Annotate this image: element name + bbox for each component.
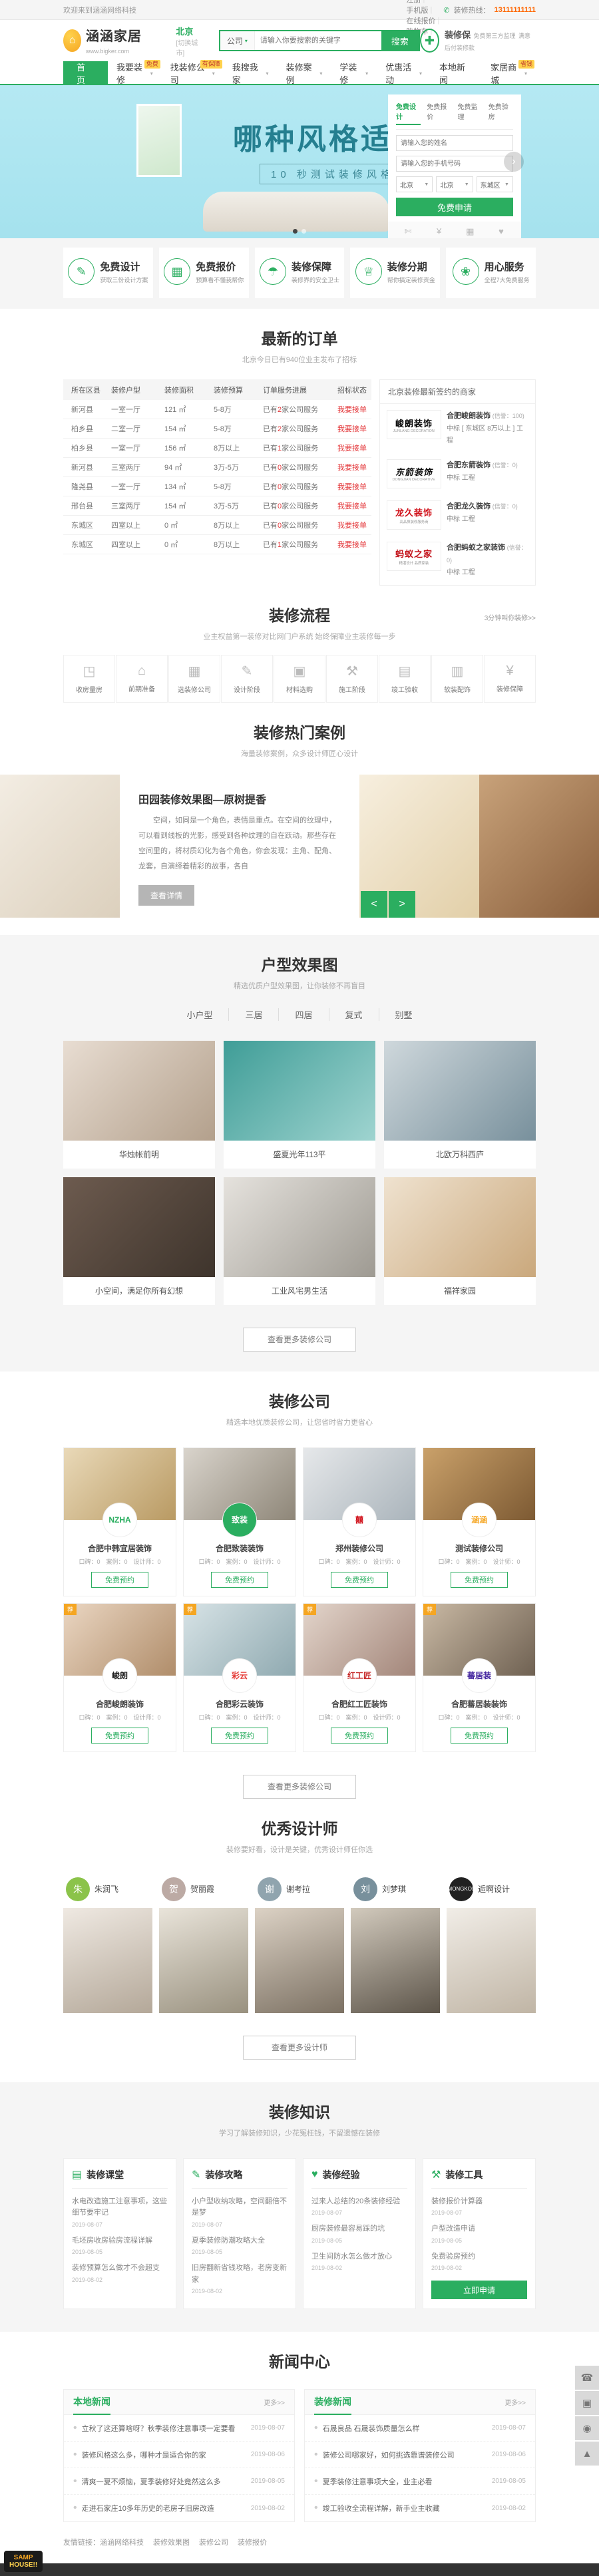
take-order-link[interactable]: 我要接单 — [337, 481, 371, 492]
phone-icon: ✆ — [443, 6, 449, 15]
company-logo: 致装 — [222, 1503, 257, 1537]
order-row: 柏乡县 一室一厅 156 ㎡ 8万以上 已有1家公司服务 我要接单 — [63, 439, 371, 458]
order-row: 新河县 三室两厅 94 ㎡ 3万-5万 已有0家公司服务 我要接单 — [63, 458, 371, 477]
apply-now-button[interactable]: 立即申请 — [431, 2281, 527, 2299]
region-select[interactable]: 东城区▼ — [477, 176, 513, 192]
service-card[interactable]: ☂ 装修保障装修界的安全卫士 — [255, 248, 345, 298]
chevron-down-icon: ▾ — [365, 71, 368, 77]
section-title: 最新的订单 — [0, 309, 599, 349]
quick-service-item[interactable]: ¥免费报价 — [427, 226, 451, 238]
form-tab[interactable]: 免费监理 — [458, 101, 483, 125]
news-more-link[interactable]: 更多>> — [504, 2397, 526, 2407]
layout-filter-tab[interactable]: 小户型 — [170, 1008, 229, 1021]
search-input[interactable] — [255, 31, 381, 50]
layout-image — [224, 1041, 375, 1141]
company-logo: 囍 — [342, 1503, 377, 1537]
company-logo: 蕃居装 — [462, 1658, 497, 1693]
bullet-icon: • — [73, 2476, 77, 2487]
designers-section: 优秀设计师 装修要好看，设计是关键，优秀设计师任你选 朱 朱润飞 贺 贺丽霞 — [0, 1799, 599, 2060]
chevron-down-icon: ▾ — [524, 71, 527, 77]
merchant-item[interactable]: 东箭装饰DONGJIAN DECORATIVE 合肥东箭装饰 (信誉：0) 中标… — [380, 453, 535, 494]
friend-link[interactable]: 装修效果图 — [153, 2539, 190, 2547]
home-icon: ⌂ — [63, 29, 81, 52]
merchant-logo: 东箭装饰DONGJIAN DECORATIVE — [387, 459, 441, 488]
chevron-down-icon: ▾ — [319, 71, 322, 77]
search-button[interactable]: 搜索 — [381, 31, 419, 50]
recommend-badge: 荐 — [423, 1604, 436, 1615]
order-row: 东城区 四室以上 0 ㎡ 8万以上 已有1家公司服务 我要接单 — [63, 535, 371, 554]
section-subtitle: 海量装修案例，众多设计师匠心设计 — [0, 748, 599, 759]
process-step-icon: ▦ — [188, 663, 201, 679]
section-subtitle: 业主权益第一装修对比网门户系统 始终保障业主装修每一步 — [0, 631, 599, 642]
company-stats: 口碑：0 案例：0 设计师：0 — [303, 1713, 415, 1722]
company-name: 合肥致装装饰 — [184, 1543, 296, 1554]
service-icon: ♥ — [489, 226, 513, 236]
layout-card[interactable]: 华烛帐前明 — [63, 1041, 215, 1169]
knowledge-article-link[interactable]: 毛坯房收房验房流程详解2019-08-05 — [72, 2235, 168, 2256]
nav-item[interactable]: 我搜我家 ▾ — [224, 61, 278, 85]
chevron-down-icon: ▾ — [419, 71, 422, 77]
quick-service-item[interactable]: ♥售后服务 — [489, 226, 513, 238]
chevron-down-icon: ▼ — [424, 182, 429, 187]
carousel-dots[interactable] — [293, 229, 306, 234]
merchant-item[interactable]: 蚂蚁之家精湛设计 品质家装 合肥蚂蚁之家装饰 (信誉：0) 中标 工程 — [380, 536, 535, 585]
take-order-link[interactable]: 我要接单 — [337, 520, 371, 530]
designer-name: 朱润飞 — [95, 1883, 118, 1895]
knowledge-article-link[interactable]: 旧房翻新省钱攻略，老房变新家2019-08-02 — [192, 2263, 288, 2295]
orders-table-header: 所在区县 装修户型 装修面积 装修预算 订单服务进展 招标状态 — [63, 379, 371, 400]
bullet-icon: • — [73, 2502, 77, 2514]
case-image[interactable] — [479, 775, 599, 918]
bullet-icon: • — [314, 2422, 318, 2434]
layout-caption: 华烛帐前明 — [63, 1141, 215, 1169]
friend-link[interactable]: 装修公司 — [199, 2539, 228, 2547]
layout-image — [63, 1041, 215, 1141]
designer-portfolio-image — [447, 1908, 536, 2013]
nav-item[interactable]: 找装修公司 ▾ 有保障 — [162, 61, 224, 85]
company-stats: 口碑：0 案例：0 设计师：0 — [303, 1557, 415, 1566]
main-nav: 首页 我要装修 ▾ 免费 找装修公司 ▾ 有保障 我搜我家 ▾ 装修案例 ▾ — [0, 61, 599, 85]
friend-link[interactable]: 涵涵网络科技 — [100, 2539, 144, 2547]
phone-field[interactable] — [396, 156, 513, 172]
company-card[interactable]: 荐 彩云 合肥彩云装饰 口碑：0 案例：0 设计师：0 免费预约 — [183, 1603, 296, 1752]
process-step-icon: ¥ — [506, 663, 513, 679]
knowledge-card: ⚒装修工具 装修报价计算器2019-08-07 户型改造申请2019-08-05… — [423, 2158, 536, 2310]
service-icon: ¥ — [427, 226, 451, 236]
order-row: 隆尧县 一室一厅 134 ㎡ 5-8万 已有0家公司服务 我要接单 — [63, 477, 371, 496]
company-name: 合肥峻朗装饰 — [64, 1698, 176, 1710]
hero-banner: 哪种风格适合你 10 秒测试装修风格 免费设计 免费报价免费监理免费验房 北京▼… — [0, 85, 599, 238]
company-name: 郑州装修公司 — [303, 1543, 415, 1554]
section-subtitle: 北京今日已有940位业主发布了招标 — [0, 354, 599, 365]
more-companies-button[interactable]: 查看更多装修公司 — [243, 1775, 356, 1799]
bullet-icon: • — [314, 2449, 318, 2461]
cases-carousel: 田园装修效果图—原树提香 空间，如同是一个角色，表情是重点。在空间的纹理中，可以… — [0, 775, 599, 918]
banner-subline: 10 秒测试装修风格 — [260, 164, 406, 184]
pen-icon: ✎ — [192, 2168, 200, 2181]
designer-name: 谢考拉 — [286, 1883, 310, 1895]
section-subtitle: 装修要好看，设计是关键，优秀设计师任你选 — [0, 1844, 599, 1855]
knowledge-article-link[interactable]: 厨房装修最容易踩的坑2019-08-05 — [311, 2223, 407, 2244]
shield-icon: ✚ — [420, 29, 439, 53]
layout-caption: 小空间，满足你所有幻想 — [63, 1277, 215, 1305]
bullet-icon: • — [73, 2422, 77, 2434]
book-company-button[interactable]: 免费预约 — [451, 1728, 508, 1744]
book-company-button[interactable]: 免费预约 — [91, 1728, 148, 1744]
chevron-down-icon: ▾ — [266, 71, 269, 77]
company-card[interactable]: 荐 峻朗 合肥峻朗装饰 口碑：0 案例：0 设计师：0 免费预约 — [63, 1603, 176, 1752]
designer-name: 贺丽霞 — [190, 1883, 214, 1895]
knowledge-card: ▤装修课堂 水电改造施工注意事项，这些细节要牢记2019-08-07 毛坯房收房… — [63, 2158, 176, 2310]
designer-portfolio-image — [159, 1908, 248, 2013]
merchant-item[interactable]: 峻朗装饰JUNLANG DECORATION 合肥峻朗装饰 (信誉：100) 中… — [380, 404, 535, 453]
case-detail-button[interactable]: 查看详情 — [138, 885, 194, 906]
news-item[interactable]: •装修公司哪家好，如何挑选靠谱装修公司2019-08-06 — [305, 2442, 535, 2468]
designer-portfolio-image — [255, 1908, 344, 2013]
bullet-icon: • — [314, 2502, 318, 2514]
knowledge-article-link[interactable]: 小户型收纳攻略，空间翻倍不是梦2019-08-07 — [192, 2196, 288, 2228]
layout-card[interactable]: 盛夏光年113平 — [224, 1041, 375, 1169]
more-designers-button[interactable]: 查看更多设计师 — [243, 2036, 356, 2060]
section-subtitle: 精选优质户型效果图，让你装修不再盲目 — [0, 980, 599, 991]
process-step[interactable]: ◳ 收房量房 — [63, 655, 115, 703]
process-step-icon: ✎ — [242, 663, 253, 679]
nav-badge: 省钱 — [518, 60, 534, 69]
switch-city-link[interactable]: [切换城市] — [176, 40, 198, 57]
logo-url: www.bigker.com — [86, 48, 129, 55]
recommend-badge: 荐 — [303, 1604, 316, 1615]
designer-card[interactable]: 朱 朱润飞 — [63, 1873, 152, 2013]
company-stats: 口碑：0 案例：0 设计师：0 — [184, 1713, 296, 1722]
layout-card[interactable]: 福祥家园 — [384, 1177, 536, 1305]
region-select[interactable]: 北京▼ — [396, 176, 433, 192]
company-card[interactable]: 致装 合肥致装装饰 口碑：0 案例：0 设计师：0 免费预约 — [183, 1447, 296, 1596]
friend-link[interactable]: 装修报价 — [238, 2539, 267, 2547]
topbar-link[interactable]: 手机版| — [406, 5, 439, 15]
service-icon: ☂ — [260, 258, 286, 285]
take-order-link[interactable]: 我要接单 — [337, 462, 371, 472]
company-card[interactable]: 荐 蕃居装 合肥蕃居装装饰 口碑：0 案例：0 设计师：0 免费预约 — [423, 1603, 536, 1752]
take-order-link[interactable]: 我要接单 — [337, 404, 371, 415]
designer-card[interactable]: 贺 贺丽霞 — [159, 1873, 248, 2013]
nav-badge: 有保障 — [200, 60, 222, 69]
news-item[interactable]: •夏季装修注意事项大全，业主必看2019-08-05 — [305, 2468, 535, 2495]
site-logo[interactable]: ⌂ 涵涵家居 www.bigker.com — [63, 25, 166, 57]
layout-filter-tab[interactable]: 复式 — [329, 1008, 379, 1021]
form-tab[interactable]: 免费设计 — [396, 101, 421, 125]
take-order-link[interactable]: 我要接单 — [337, 539, 371, 550]
form-tab[interactable]: 免费验房 — [489, 101, 513, 125]
knowledge-article-link[interactable]: 装修预算怎么做才不会超支2019-08-02 — [72, 2263, 168, 2283]
banner-sofa-image — [203, 192, 389, 232]
merchant-logo: 蚂蚁之家精湛设计 品质家装 — [387, 542, 441, 571]
search-box: 公司▾ 搜索 — [219, 30, 420, 51]
designer-card[interactable]: 刘 刘梦琪 — [351, 1873, 440, 2013]
service-icon: ❀ — [453, 258, 479, 285]
process-step-icon: ▣ — [294, 663, 306, 679]
section-title: 装修热门案例 — [0, 703, 599, 743]
layout-image — [384, 1041, 536, 1141]
process-step[interactable]: ⌂ 前期准备 — [116, 655, 168, 703]
designer-avatar: 谢 — [258, 1877, 282, 1901]
process-step-icon: ⌂ — [138, 663, 146, 679]
case-title: 田园装修效果图—原树提香 — [138, 791, 341, 807]
chevron-down-icon: ▾ — [150, 71, 153, 77]
guarantee-badge: ✚ 装修保 免费第三方监理 满意后付装修款 — [420, 28, 536, 53]
section-title: 新闻中心 — [0, 2332, 599, 2372]
tools-icon: ⚒ — [431, 2168, 441, 2181]
news-more-link[interactable]: 更多>> — [264, 2397, 285, 2407]
merchant-item[interactable]: 龙久装饰高品质装修服务商 合肥龙久装饰 (信誉：0) 中标 工程 — [380, 494, 535, 536]
process-step-icon: ◳ — [83, 663, 96, 679]
service-icon: ▦ — [164, 258, 190, 285]
name-field[interactable] — [396, 135, 513, 151]
current-city: 北京 — [176, 25, 200, 37]
process-step[interactable]: ▥ 软装配饰 — [431, 655, 483, 703]
nav-item[interactable]: 我要装修 ▾ 免费 — [108, 61, 162, 85]
carousel-prev-button[interactable]: < — [361, 891, 387, 918]
back-to-top-button[interactable]: ▲ — [575, 2442, 599, 2466]
news-tab[interactable]: 本地新闻 — [73, 2390, 110, 2415]
region-select[interactable]: 北京▼ — [436, 176, 473, 192]
nav-item[interactable]: 装修案例 ▾ — [278, 61, 331, 85]
friend-links: 友情链接：涵涵网络科技装修效果图装修公司装修报价 — [63, 2537, 536, 2563]
designer-portfolio-image — [351, 1908, 440, 2013]
layout-card[interactable]: 小空间，满足你所有幻想 — [63, 1177, 215, 1305]
carousel-next-button[interactable]: › — [504, 152, 524, 172]
book-company-button[interactable]: 免费预约 — [211, 1572, 268, 1588]
section-title: 户型效果图 — [0, 935, 599, 975]
take-order-link[interactable]: 我要接单 — [337, 500, 371, 511]
company-stats: 口碑：0 案例：0 设计师：0 — [184, 1557, 296, 1566]
merchant-logo: 龙久装饰高品质装修服务商 — [387, 500, 441, 530]
layout-renderings-section: 户型效果图 精选优质户型效果图，让你装修不再盲目 小户型 三居四居复式别墅 华烛… — [0, 935, 599, 1372]
knowledge-tool-link[interactable]: 免费验房预约2019-08-02 — [431, 2251, 527, 2272]
designer-portfolio-image — [63, 1908, 152, 2013]
top-utility-bar: 欢迎来到涵涵网络科技 登录|注册|手机版|在线报价|购物车| ✆ 装修热线： 1… — [0, 0, 599, 20]
company-name: 合肥红工匠装饰 — [303, 1698, 415, 1710]
process-step-icon: ▤ — [399, 663, 411, 679]
nav-item[interactable]: 优惠活动 ▾ — [377, 61, 431, 85]
take-order-link[interactable]: 我要接单 — [337, 423, 371, 434]
process-step-icon: ▥ — [451, 663, 464, 679]
apply-submit-button[interactable]: 免费申请 — [396, 198, 513, 216]
knowledge-article-link[interactable]: 卫生间防水怎么做才放心2019-08-02 — [311, 2251, 407, 2272]
company-stats: 口碑：0 案例：0 设计师：0 — [423, 1557, 535, 1566]
book-company-button[interactable]: 免费预约 — [211, 1728, 268, 1744]
layout-filter-tab[interactable]: 四居 — [279, 1008, 329, 1021]
layout-image — [384, 1177, 536, 1277]
recommend-badge: 荐 — [184, 1604, 196, 1615]
service-strip: ✎ 免费设计获取三份设计方案 ▦ 免费报价预算看不懂我帮你 ☂ 装修保障装修界的… — [0, 238, 599, 309]
layout-card[interactable]: 北欧万科西庐 — [384, 1041, 536, 1169]
section-subtitle: 学习了解装修知识，少花冤枉钱，不留遗憾在装修 — [0, 2127, 599, 2138]
service-icon: ✎ — [68, 258, 95, 285]
layout-filter-tab[interactable]: 别墅 — [379, 1008, 429, 1021]
book-icon: ▤ — [72, 2168, 82, 2181]
decor-news-panel: 装修新闻 更多>> •石晟良品 石晟装饰质量怎么样2019-08-07 •装修公… — [304, 2389, 536, 2522]
company-card[interactable]: NZHA 合肥中韩宜居装饰 口碑：0 案例：0 设计师：0 免费预约 — [63, 1447, 176, 1596]
footer: 新手指南 免费注册会员登录找回密码常见问题 装修服务 免费设计免费报价免费监理免… — [0, 2563, 599, 2576]
service-icon: ▦ — [458, 226, 482, 237]
service-card[interactable]: ❀ 用心服务全程7大免费服务 — [446, 248, 536, 298]
companies-section: 装修公司 精选本地优质装修公司，让您省时省力更省心 NZHA 合肥中韩宜居装饰 … — [0, 1372, 599, 1799]
designer-name: 逅啊设计 — [478, 1883, 510, 1895]
news-item[interactable]: •立秋了这还算啥呀？秋季装修注意事项一定要看2019-08-07 — [64, 2415, 294, 2442]
carousel-next-button[interactable]: > — [389, 891, 415, 918]
nav-item[interactable]: 学装修 ▾ — [331, 61, 377, 85]
phone-sidebar-button[interactable]: ☎ — [575, 2366, 599, 2390]
hot-cases-section: 装修热门案例 海量装修案例，众多设计师匠心设计 田园装修效果图—原树提香 空间，… — [0, 703, 599, 918]
service-card[interactable]: ✎ 免费设计获取三份设计方案 — [63, 248, 153, 298]
knowledge-card: ✎装修攻略 小户型收纳攻略，空间翻倍不是梦2019-08-07 夏季装修防潮攻略… — [183, 2158, 296, 2310]
section-title: 装修公司 — [0, 1372, 599, 1411]
recommend-badge: 荐 — [64, 1604, 77, 1615]
section-subtitle: 精选本地优质装修公司，让您省时省力更省心 — [0, 1417, 599, 1427]
process-step[interactable]: ✎ 设计阶段 — [221, 655, 273, 703]
company-card[interactable]: 荐 红工匠 合肥红工匠装饰 口碑：0 案例：0 设计师：0 免费预约 — [303, 1603, 416, 1752]
layout-caption: 福祥家园 — [384, 1277, 536, 1305]
layout-caption: 工业风宅男生活 — [224, 1277, 375, 1305]
hotline-label: 装修热线： — [454, 5, 491, 15]
process-step[interactable]: ▣ 材料选购 — [274, 655, 325, 703]
process-step[interactable]: ¥ 装修保障 — [484, 655, 536, 703]
bullet-icon: • — [314, 2476, 318, 2487]
designer-avatar: 贺 — [162, 1877, 186, 1901]
company-name: 合肥彩云装饰 — [184, 1698, 296, 1710]
process-step[interactable]: ▦ 选装修公司 — [168, 655, 220, 703]
layout-filter-tab[interactable]: 三居 — [229, 1008, 279, 1021]
company-logo: NZHA — [102, 1503, 137, 1537]
nav-item[interactable]: 首页 — [63, 61, 108, 85]
case-description: 空间，如同是一个角色，表情是重点。在空间的纹理中，可以看到线板的光影，感受到各种… — [138, 813, 341, 877]
guarantee-line1: 免费第三方监理 — [474, 33, 516, 39]
bullet-icon: • — [73, 2449, 77, 2461]
company-logo: 红工匠 — [342, 1658, 377, 1693]
nav-item[interactable]: 家居商城 ▾ 省钱 — [482, 61, 536, 85]
news-item[interactable]: •竣工验收全流程详解，新手业主收藏2019-08-02 — [305, 2495, 535, 2521]
hotline-number: 13111111111 — [495, 6, 536, 14]
orders-table: 所在区县 装修户型 装修面积 装修预算 订单服务进展 招标状态 新河县 一室一厅… — [63, 379, 371, 586]
form-tab[interactable]: 免费报价 — [427, 101, 451, 125]
welcome-text: 欢迎来到涵涵网络科技 — [63, 5, 136, 15]
service-icon: ✄ — [396, 226, 420, 237]
news-item[interactable]: •石晟良品 石晟装饰质量怎么样2019-08-07 — [305, 2415, 535, 2442]
layout-card[interactable]: 工业风宅男生活 — [224, 1177, 375, 1305]
nav-item[interactable]: 本地新闻 — [431, 61, 482, 85]
heart-icon: ♥ — [311, 2169, 318, 2181]
layout-caption: 盛夏光年113平 — [224, 1141, 375, 1169]
book-company-button[interactable]: 免费预约 — [331, 1572, 388, 1588]
signed-merchants-panel: 北京装修最新签约的商家 峻朗装饰JUNLANG DECORATION 合肥峻朗装… — [379, 379, 536, 586]
order-row: 新河县 一室一厅 121 ㎡ 5-8万 已有2家公司服务 我要接单 — [63, 400, 371, 419]
order-row: 邢台县 三室两厅 154 ㎡ 3万-5万 已有0家公司服务 我要接单 — [63, 496, 371, 516]
logo-name: 涵涵家居 — [86, 29, 142, 44]
company-logo: 彩云 — [222, 1658, 257, 1693]
layout-caption: 北欧万科西庐 — [384, 1141, 536, 1169]
case-detail-card: 田园装修效果图—原树提香 空间，如同是一个角色，表情是重点。在空间的纹理中，可以… — [120, 775, 359, 918]
designer-avatar: 刘 — [353, 1877, 377, 1901]
news-item[interactable]: •装修风格这么多，哪种才是适合你的家2019-08-06 — [64, 2442, 294, 2468]
designer-card[interactable]: MONGKOL 逅啊设计 — [447, 1873, 536, 2013]
search-category-select[interactable]: 公司▾ — [220, 31, 255, 50]
company-stats: 口碑：0 案例：0 设计师：0 — [423, 1713, 535, 1722]
book-company-button[interactable]: 免费预约 — [91, 1572, 148, 1588]
take-order-link[interactable]: 我要接单 — [337, 443, 371, 453]
guarantee-title: 装修保 — [445, 30, 471, 40]
section-title: 装修知识 — [0, 2082, 599, 2122]
page: 欢迎来到涵涵网络科技 登录|注册|手机版|在线报价|购物车| ✆ 装修热线： 1… — [0, 0, 599, 2576]
news-section: 新闻中心 本地新闻 更多>> •立秋了这还算啥呀？秋季装修注意事项一定要看201… — [0, 2332, 599, 2563]
latest-orders-section: 最新的订单 北京今日已有940位业主发布了招标 所在区县 装修户型 装修面积 装… — [0, 309, 599, 586]
news-item[interactable]: •走进石家庄10多年历史的老房子旧房改造2019-08-02 — [64, 2495, 294, 2521]
company-card[interactable]: 涵涵 测试装修公司 口碑：0 案例：0 设计师：0 免费预约 — [423, 1447, 536, 1596]
designer-name: 刘梦琪 — [382, 1883, 406, 1895]
knowledge-article-link[interactable]: 夏季装修防潮攻略大全2019-08-05 — [192, 2235, 288, 2256]
case-image[interactable] — [0, 775, 120, 918]
knowledge-section: 装修知识 学习了解装修知识，少花冤枉钱，不留遗憾在装修 ▤装修课堂 水电改造施工… — [0, 2082, 599, 2332]
book-company-button[interactable]: 免费预约 — [451, 1572, 508, 1588]
company-logo: 涵涵 — [462, 1503, 497, 1537]
qrcode-sidebar-button[interactable]: ▣ — [575, 2391, 599, 2415]
banner-plant-image — [136, 104, 182, 177]
three-minute-link[interactable]: 3分钟叫你装修>> — [485, 612, 536, 622]
book-company-button[interactable]: 免费预约 — [331, 1728, 388, 1744]
news-item[interactable]: •清爽一夏不烦恼，夏季装修好处竟然这么多2019-08-05 — [64, 2468, 294, 2495]
news-tab[interactable]: 装修新闻 — [314, 2390, 351, 2415]
quick-service-item[interactable]: ▦免费预算 — [458, 226, 482, 238]
mascot-banner[interactable]: SAMP HOUSE!! — [4, 2551, 43, 2572]
order-row: 柏乡县 二室一厅 154 ㎡ 5-8万 已有2家公司服务 我要接单 — [63, 419, 371, 439]
apply-form: 免费设计 免费报价免费监理免费验房 北京▼ 北京▼东城区▼ 免费申请 ✄免费设计… — [388, 94, 521, 238]
site-header: ⌂ 涵涵家居 www.bigker.com 北京 [切换城市] 公司▾ 搜索 ✚… — [0, 20, 599, 61]
process-step[interactable]: ▤ 竣工验收 — [379, 655, 431, 703]
company-logo: 峻朗 — [102, 1658, 137, 1693]
knowledge-article-link[interactable]: 过来人总结的20条装修经验2019-08-07 — [311, 2196, 407, 2217]
order-row: 东城区 四室以上 0 ㎡ 8万以上 已有0家公司服务 我要接单 — [63, 516, 371, 535]
company-card[interactable]: 囍 郑州装修公司 口碑：0 案例：0 设计师：0 免费预约 — [303, 1447, 416, 1596]
knowledge-article-link[interactable]: 水电改造施工注意事项，这些细节要牢记2019-08-07 — [72, 2196, 168, 2228]
topbar-link[interactable]: 注册| — [406, 0, 439, 5]
layout-image — [224, 1177, 375, 1277]
service-icon: ♕ — [355, 258, 382, 285]
designer-card[interactable]: 谢 谢考拉 — [255, 1873, 344, 2013]
knowledge-card: ♥装修经验 过来人总结的20条装修经验2019-08-07 厨房装修最容易踩的坑… — [303, 2158, 416, 2310]
service-card[interactable]: ▦ 免费报价预算看不懂我帮你 — [159, 248, 249, 298]
company-name: 合肥中韩宜居装饰 — [64, 1543, 176, 1554]
chevron-down-icon: ▼ — [465, 182, 469, 187]
company-stats: 口碑：0 案例：0 设计师：0 — [64, 1557, 176, 1566]
service-sidebar-button[interactable]: ◉ — [575, 2416, 599, 2440]
section-title: 优秀设计师 — [0, 1799, 599, 1839]
chevron-down-icon: ▼ — [504, 182, 509, 187]
designer-avatar: 朱 — [66, 1877, 90, 1901]
knowledge-tool-link[interactable]: 户型改造申请2019-08-05 — [431, 2223, 527, 2244]
more-layouts-button[interactable]: 查看更多装修公司 — [243, 1328, 356, 1352]
process-section: 装修流程 业主权益第一装修对比网门户系统 始终保障业主装修每一步 3分钟叫你装修… — [0, 586, 599, 703]
process-step-icon: ⚒ — [346, 663, 358, 679]
chevron-down-icon: ▾ — [212, 71, 215, 77]
knowledge-tool-link[interactable]: 装修报价计算器2019-08-07 — [431, 2196, 527, 2217]
service-card[interactable]: ♕ 装修分期帮你搞定装修资金 — [350, 248, 440, 298]
company-name: 合肥蕃居装装饰 — [423, 1698, 535, 1710]
nav-badge: 免费 — [144, 60, 160, 69]
quick-service-item[interactable]: ✄免费设计 — [396, 226, 420, 238]
company-stats: 口碑：0 案例：0 设计师：0 — [64, 1713, 176, 1722]
floating-sidebar: ☎ ▣ ◉ ▲ — [575, 2366, 599, 2466]
process-step[interactable]: ⚒ 施工阶段 — [326, 655, 378, 703]
layout-image — [63, 1177, 215, 1277]
